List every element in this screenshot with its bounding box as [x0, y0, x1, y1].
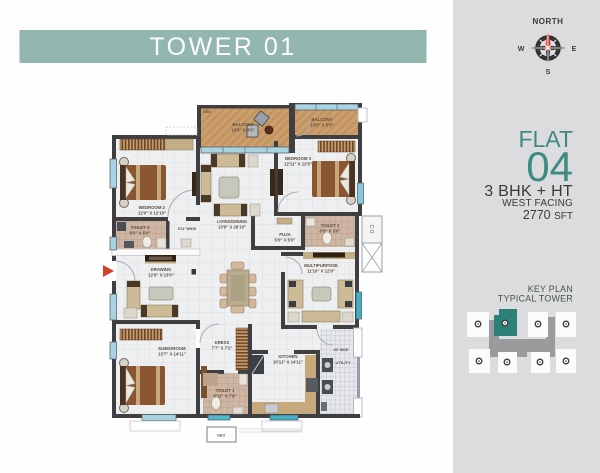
svg-text:C.O: C.O — [368, 225, 374, 234]
svg-text:GEO: GEO — [217, 434, 225, 438]
svg-text:6'11" X 7'8": 6'11" X 7'8" — [213, 394, 236, 399]
svg-text:GEO: GEO — [203, 110, 211, 114]
svg-text:TOWER 01: TOWER 01 — [149, 33, 296, 61]
svg-text:TOILET 1: TOILET 1 — [216, 388, 235, 393]
svg-text:W: W — [518, 46, 525, 53]
svg-text:TOILET 3: TOILET 3 — [321, 223, 340, 228]
svg-text:PUJA: PUJA — [279, 232, 290, 237]
svg-text:BALCONY: BALCONY — [232, 122, 253, 127]
svg-text:UTILITY: UTILITY — [335, 360, 350, 365]
svg-text:11'10" X 12'0": 11'10" X 12'0" — [307, 269, 335, 274]
svg-text:13'0" X 5'0": 13'0" X 5'0" — [310, 123, 333, 128]
svg-text:10'11" X 14'11": 10'11" X 14'11" — [273, 360, 303, 365]
svg-text:M.BEDROOM: M.BEDROOM — [158, 346, 186, 351]
svg-text:NORTH: NORTH — [533, 17, 564, 26]
svg-text:10'0" X 8'0": 10'0" X 8'0" — [231, 128, 254, 133]
svg-text:DRESS: DRESS — [215, 340, 230, 345]
svg-text:BEDROOM 3: BEDROOM 3 — [285, 156, 312, 161]
svg-text:BEDROOM 2: BEDROOM 2 — [139, 205, 166, 210]
svg-text:12'0" X 12'10": 12'0" X 12'10" — [138, 211, 166, 216]
svg-text:S: S — [546, 69, 551, 76]
svg-text:TYPICAL TOWER: TYPICAL TOWER — [498, 294, 573, 304]
svg-text:12'11" X 12'0": 12'11" X 12'0" — [284, 162, 312, 167]
svg-text:KEY PLAN: KEY PLAN — [528, 284, 573, 294]
svg-text:5'11"WIDE: 5'11"WIDE — [178, 227, 197, 231]
svg-text:DRAWING: DRAWING — [151, 267, 172, 272]
svg-text:TOILET 2: TOILET 2 — [131, 225, 150, 230]
svg-text:2770 SFT: 2770 SFT — [523, 208, 573, 222]
svg-text:KITCHEN: KITCHEN — [278, 354, 297, 359]
svg-text:60' SIDE: 60' SIDE — [333, 348, 349, 352]
svg-text:7'7" X 7'2": 7'7" X 7'2" — [212, 346, 233, 351]
svg-text:MULTIPURPOSE: MULTIPURPOSE — [304, 263, 338, 268]
svg-text:E: E — [572, 46, 577, 53]
svg-text:LIVING/DINING: LIVING/DINING — [217, 219, 248, 224]
svg-text:5'0" X 5'0": 5'0" X 5'0" — [275, 238, 296, 243]
svg-text:12'6" X 13'0": 12'6" X 13'0" — [148, 273, 174, 278]
svg-text:13'7" X 14'11": 13'7" X 14'11" — [158, 352, 186, 357]
svg-text:8'0" X 5'0": 8'0" X 5'0" — [320, 229, 341, 234]
svg-text:BALCONY: BALCONY — [311, 117, 332, 122]
svg-text:8'0" X 5'0": 8'0" X 5'0" — [130, 231, 151, 236]
svg-text:13'0" X 26'10": 13'0" X 26'10" — [218, 225, 246, 230]
